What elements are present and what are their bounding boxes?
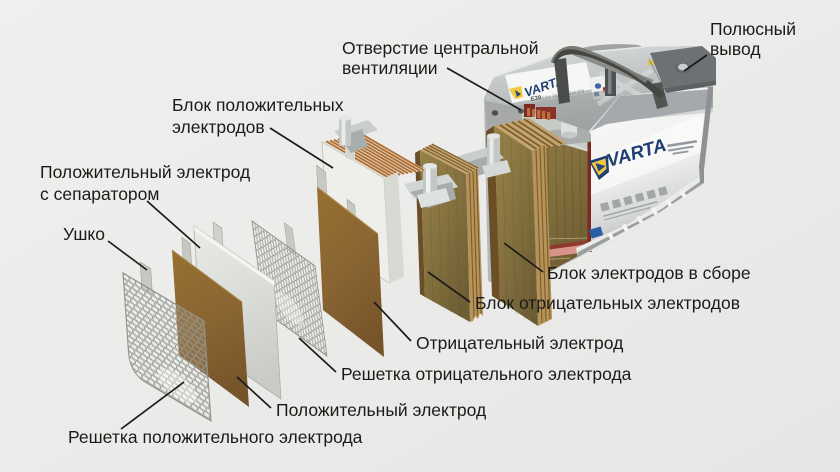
svg-text:Решетка положительного электро: Решетка положительного электрода	[68, 427, 363, 447]
svg-text:Положительный электрод: Положительный электрод	[276, 400, 486, 420]
svg-text:электродов: электродов	[172, 117, 265, 137]
svg-text:Решетка отрицательного электро: Решетка отрицательного электрода	[341, 364, 632, 384]
svg-text:с сепаратором: с сепаратором	[40, 184, 159, 204]
svg-text:Положительный электрод: Положительный электрод	[40, 162, 250, 182]
svg-text:Отрицательный электрод: Отрицательный электрод	[416, 333, 623, 353]
svg-text:Блок положительных: Блок положительных	[172, 95, 344, 115]
svg-text:Ушко: Ушко	[63, 224, 105, 244]
svg-text:Блок электродов в сборе: Блок электродов в сборе	[547, 263, 751, 283]
svg-text:вывод: вывод	[710, 39, 761, 59]
svg-text:Отверстие центральной: Отверстие центральной	[342, 38, 539, 58]
svg-text:вентиляции: вентиляции	[342, 58, 438, 78]
svg-text:Полюсный: Полюсный	[710, 19, 796, 39]
svg-text:Блок отрицательных электродов: Блок отрицательных электродов	[475, 293, 740, 313]
